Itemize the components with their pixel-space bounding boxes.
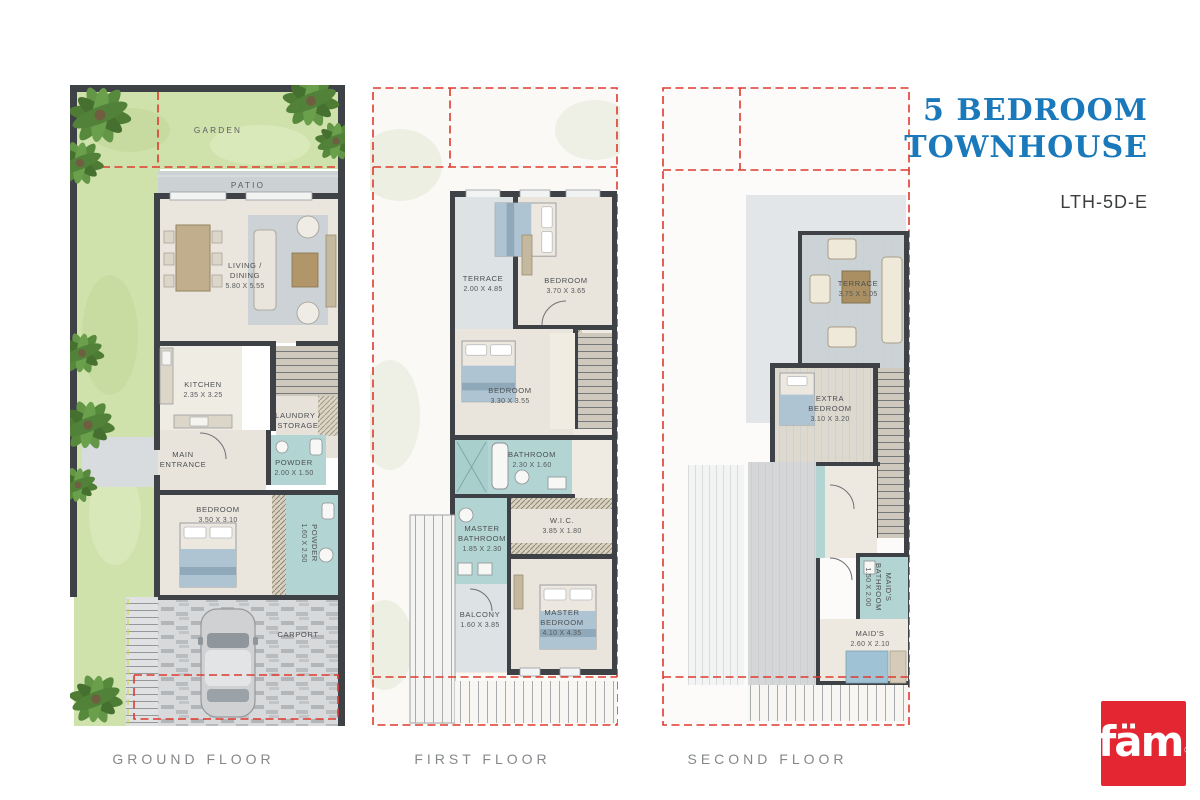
floorplan-sheet: GARDEN PATIO LIVING / DINING 5.80 X 5.55 xyxy=(0,0,1200,800)
window xyxy=(520,190,550,198)
first-floor-caption: FIRST FLOOR xyxy=(345,751,620,767)
laundry-label-2: STORAGE xyxy=(277,421,318,430)
wic-label: W.I.C. xyxy=(550,516,574,525)
title-block: 5 BEDROOM TOWNHOUSE LTH-5D-E xyxy=(904,92,1148,213)
fam-logo: fäm ® xyxy=(1101,701,1186,786)
extra-bedroom-dims: 3.10 X 3.20 xyxy=(810,416,849,423)
powder-room-1: POWDER 2.00 X 1.50 xyxy=(266,430,326,485)
bathroom-label: BATHROOM xyxy=(508,450,556,459)
maids-bath-label-1: MAID'S xyxy=(884,572,893,601)
powder-room-2: POWDER 1.60 X 2.50 xyxy=(272,495,338,595)
powder2-dims: 1.60 X 2.50 xyxy=(300,523,307,562)
page-title-line-1: 5 BEDROOM xyxy=(904,92,1148,129)
master-bedroom: MASTER BEDROOM 4.10 X 4.35 xyxy=(507,554,617,676)
wall xyxy=(450,191,455,331)
maids-dims: 2.60 X 2.10 xyxy=(850,641,889,648)
walk-in-closet: W.I.C. 3.85 X 1.80 xyxy=(507,494,612,554)
entrance-label-1: MAIN xyxy=(172,450,193,459)
window xyxy=(466,190,500,198)
powder2-label: POWDER xyxy=(310,524,319,562)
terrace2-label: TERRACE xyxy=(838,279,879,288)
terrace2-dims: 3.75 X 5.05 xyxy=(838,291,877,298)
master-bedroom-dims: 4.10 X 4.35 xyxy=(542,630,581,637)
patio-label: PATIO xyxy=(231,181,265,190)
main-entrance: MAIN ENTRANCE xyxy=(82,430,266,495)
bedroom2-dims: 3.30 X 3.55 xyxy=(490,398,529,405)
wall xyxy=(338,85,345,726)
carport: CARPORT xyxy=(154,595,340,726)
maids-bath-label-2: BATHROOM xyxy=(874,563,883,611)
first-floor-plan: TERRACE 2.00 X 4.85 BEDROOM 3.70 X 3.65 … xyxy=(370,85,620,730)
bedroom1-dims: 3.70 X 3.65 xyxy=(546,288,585,295)
master-bath-dims: 1.85 X 2.30 xyxy=(462,546,501,553)
maids-bathroom: MAID'S BATHROOM 1.50 X 2.00 xyxy=(856,553,909,623)
laundry-label-1: LAUNDRY / xyxy=(275,411,321,420)
entrance-label-2: ENTRANCE xyxy=(160,460,207,469)
balcony: BALCONY 1.60 X 3.85 xyxy=(455,584,507,672)
living-dining-room: LIVING / DINING 5.80 X 5.55 xyxy=(154,192,340,343)
maids-label: MAID'S xyxy=(855,629,884,638)
ground-floor-caption: GROUND FLOOR xyxy=(56,751,331,767)
maids-bath-dims: 1.50 X 2.00 xyxy=(864,567,871,606)
garden-label: GARDEN xyxy=(194,126,242,135)
kitchen-label: KITCHEN xyxy=(184,380,222,389)
carport-label: CARPORT xyxy=(277,630,318,639)
bedroom1-label: BEDROOM xyxy=(544,276,587,285)
second-floor-caption: SECOND FLOOR xyxy=(630,751,905,767)
fam-logo-text: fäm xyxy=(1098,717,1182,766)
terrace-label: TERRACE xyxy=(463,274,504,283)
ground-floor-plan: GARDEN PATIO LIVING / DINING 5.80 X 5.55 xyxy=(70,85,345,730)
kitchen-dims: 2.35 X 3.25 xyxy=(183,392,222,399)
ground-bedroom-dims: 3.50 X 3.10 xyxy=(198,517,237,524)
second-floor-plan: TERRACE 3.75 X 5.05 EXTRA BEDROOM 3.10 X… xyxy=(660,85,915,730)
living-label-1: LIVING / xyxy=(228,261,262,270)
balcony-label: BALCONY xyxy=(460,610,501,619)
living-label-2: DINING xyxy=(230,271,260,280)
extra-bedroom-label-2: BEDROOM xyxy=(808,404,851,413)
bathroom-dims: 2.30 X 1.60 xyxy=(512,462,551,469)
master-bath-label-2: BATHROOM xyxy=(458,534,506,543)
powder1-dims: 2.00 X 1.50 xyxy=(274,470,313,477)
ground-bedroom-label: BEDROOM xyxy=(196,505,239,514)
pergola xyxy=(748,685,908,721)
registered-mark: ® xyxy=(1184,745,1191,755)
wall xyxy=(612,191,617,675)
roof-area xyxy=(688,462,816,685)
living-dims: 5.80 X 5.55 xyxy=(225,283,264,290)
powder1-label: POWDER xyxy=(275,458,313,467)
side-walkway xyxy=(126,597,158,726)
master-bedroom-label-1: MASTER xyxy=(544,608,579,617)
staircase xyxy=(550,329,612,429)
unit-code: LTH-5D-E xyxy=(904,192,1148,213)
wic-dims: 3.85 X 1.80 xyxy=(542,528,581,535)
balcony-dims: 1.60 X 3.85 xyxy=(460,622,499,629)
master-bath-label-1: MASTER xyxy=(464,524,499,533)
extra-bedroom: EXTRA BEDROOM 3.10 X 3.20 xyxy=(770,363,880,462)
page-title-line-2: TOWNHOUSE xyxy=(904,129,1148,166)
terrace-dims: 2.00 X 4.85 xyxy=(463,286,502,293)
extra-bedroom-label-1: EXTRA xyxy=(816,394,845,403)
bedroom2-label: BEDROOM xyxy=(488,386,531,395)
window xyxy=(566,190,600,198)
master-bedroom-label-2: BEDROOM xyxy=(540,618,583,627)
